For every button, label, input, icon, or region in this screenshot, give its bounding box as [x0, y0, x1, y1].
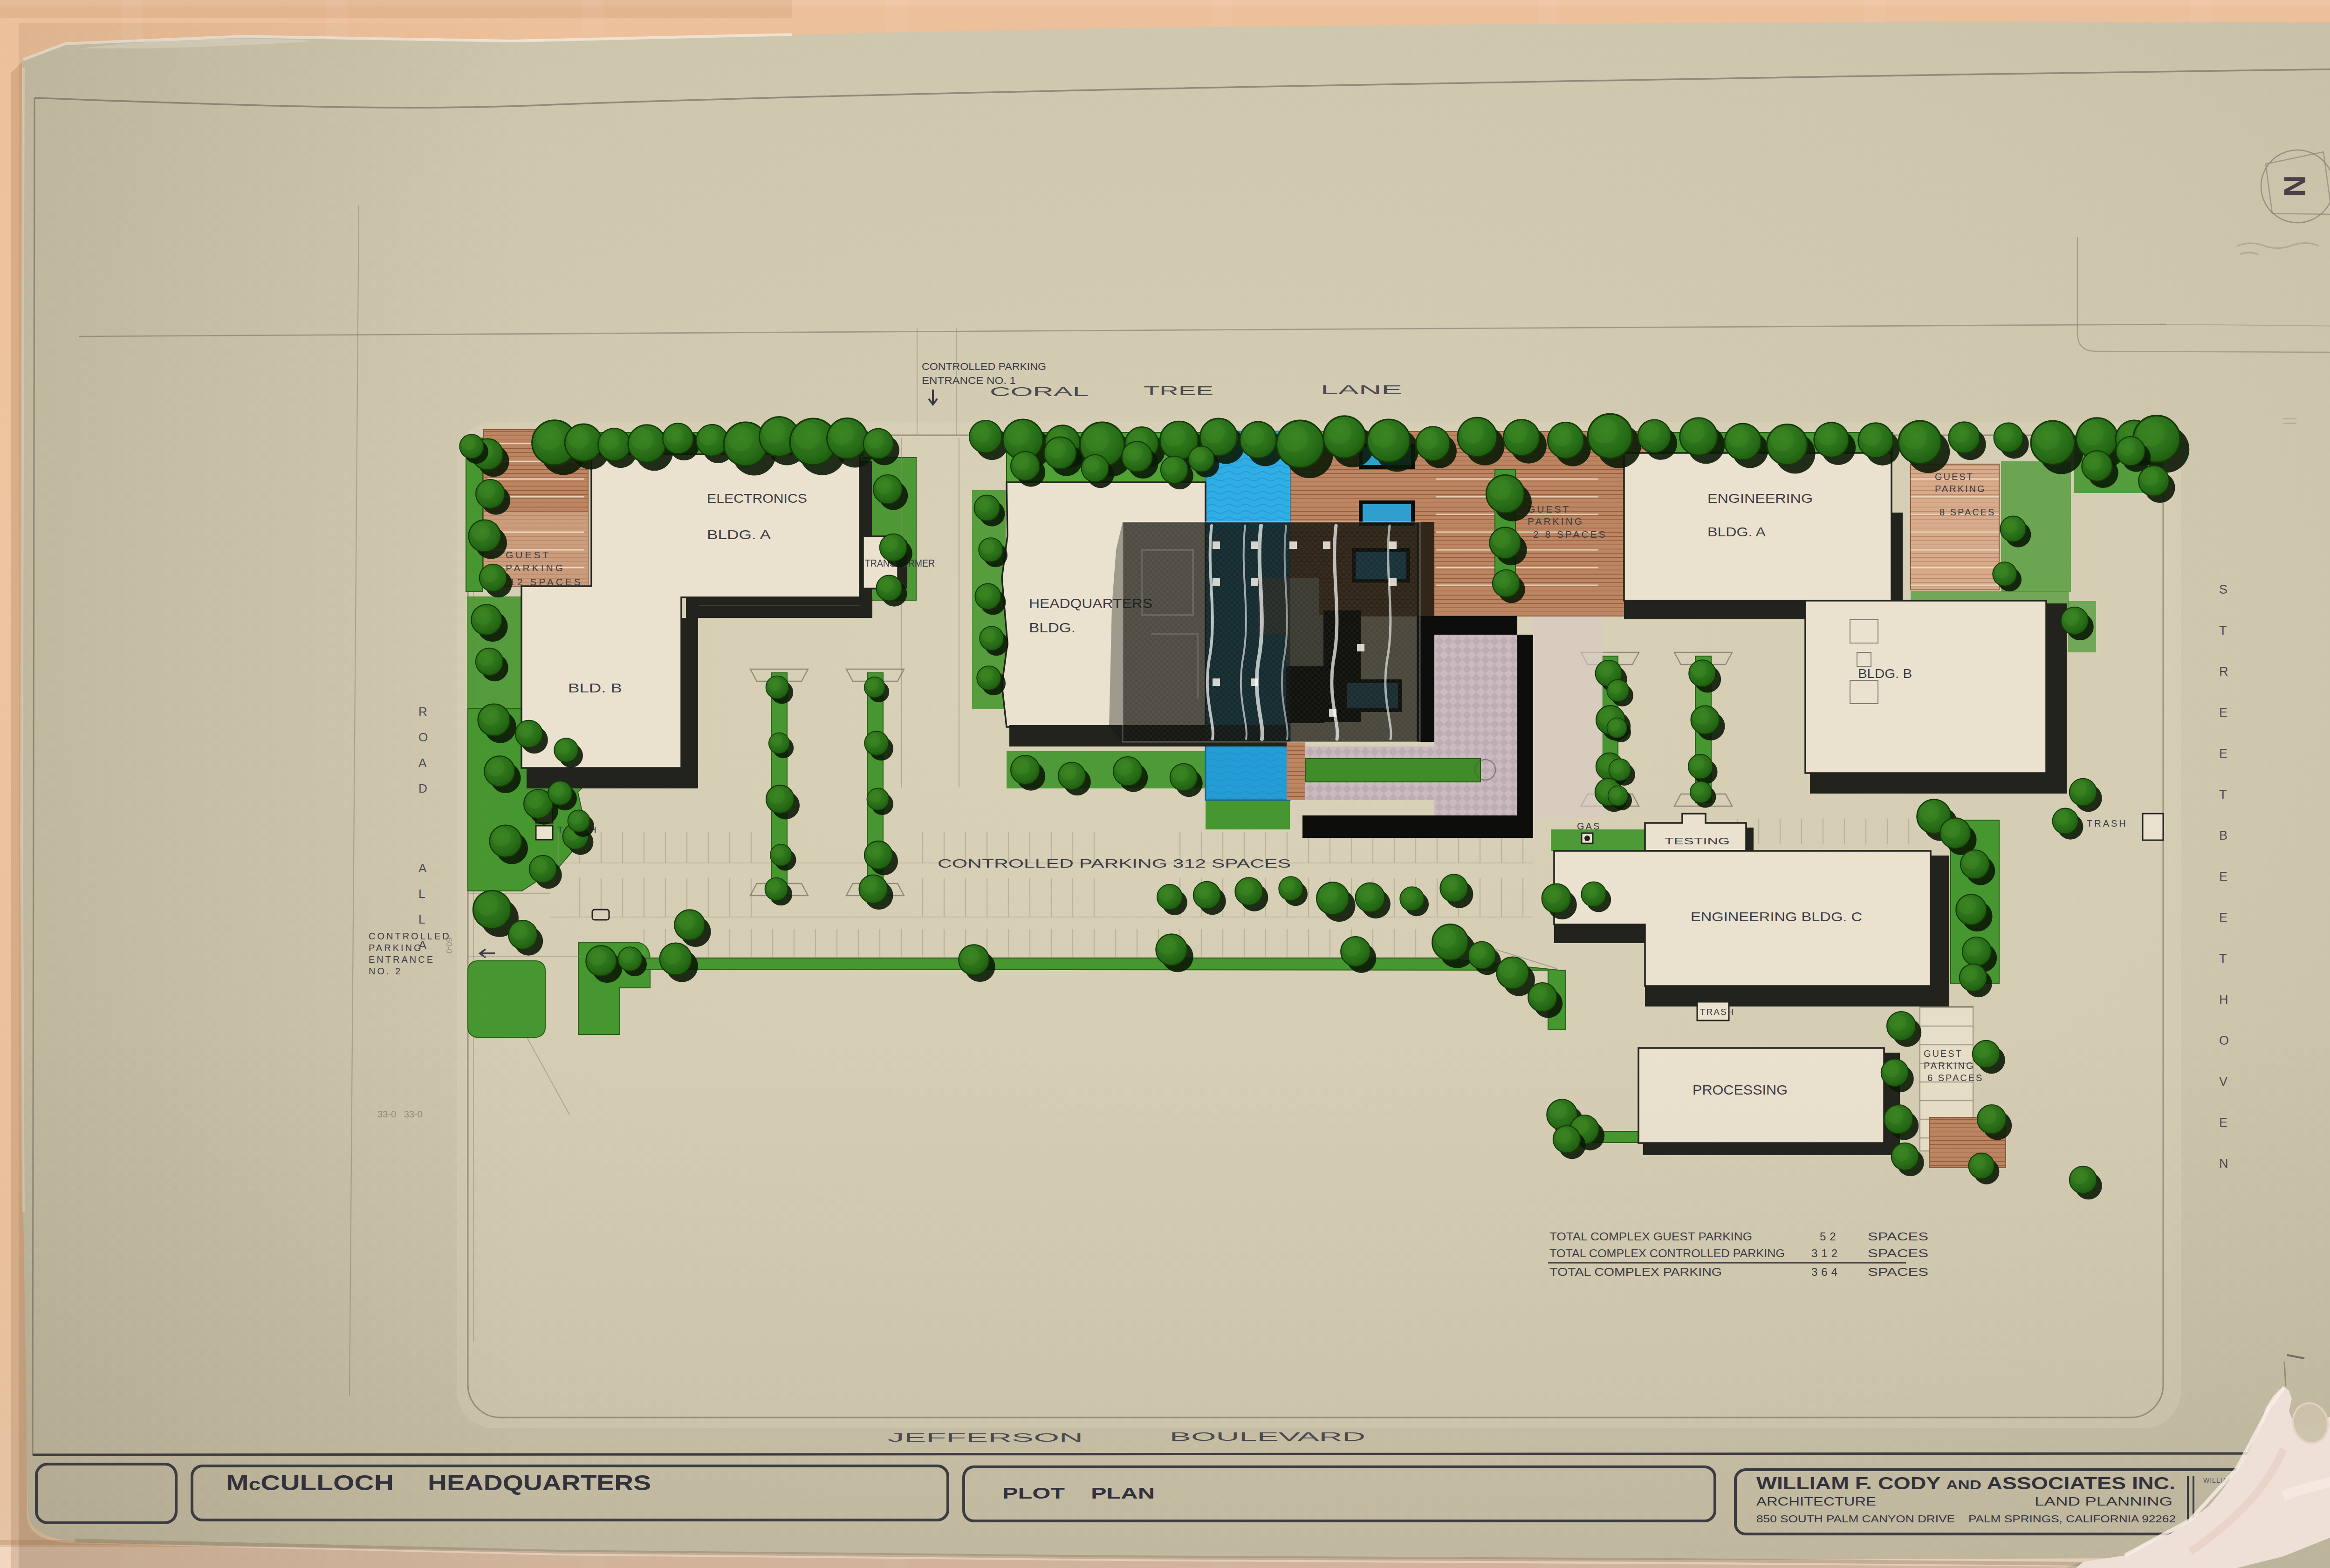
svg-text:ARCHITECTURE: ARCHITECTURE — [1756, 1494, 1876, 1508]
svg-text:TRASH: TRASH — [2087, 818, 2128, 829]
svg-text:TRASH: TRASH — [1700, 1007, 1734, 1017]
svg-text:GAS: GAS — [1577, 821, 1601, 831]
svg-text:LANE: LANE — [1321, 383, 1402, 397]
svg-text:2 8 SPACES: 2 8 SPACES — [1533, 529, 1607, 540]
svg-text:850 SOUTH PALM CANYON DRIVE: 850 SOUTH PALM CANYON DRIVE PALM SPRINGS… — [1756, 1513, 2176, 1525]
svg-text:PARKING: PARKING — [1528, 516, 1584, 527]
svg-text:T: T — [2219, 623, 2227, 637]
svg-text:TESTING: TESTING — [1665, 835, 1730, 846]
svg-text:LAND PLANNING: LAND PLANNING — [2035, 1494, 2172, 1508]
svg-text:HEADQUARTERS: HEADQUARTERS — [428, 1471, 651, 1495]
svg-text:PLAN: PLAN — [1091, 1484, 1155, 1502]
svg-text:BLDG. B: BLDG. B — [1858, 666, 1912, 681]
svg-text:CONTROLLED PARKING 312 S: CONTROLLED PARKING 312 SPACES — [938, 856, 1291, 870]
svg-text:E: E — [2219, 870, 2227, 883]
svg-text:B: B — [2219, 829, 2227, 842]
svg-text:ENGINEERING BLDG. C: ENGINEERING BLDG. C — [1691, 910, 1862, 924]
svg-text:E: E — [2219, 705, 2227, 719]
svg-text:S: S — [2219, 582, 2227, 596]
svg-text:SPACES: SPACES — [1868, 1247, 1928, 1260]
svg-text:PLOT: PLOT — [1002, 1484, 1065, 1502]
svg-text:312: 312 — [1811, 1247, 1841, 1260]
svg-text:8 SPACES: 8 SPACES — [1939, 507, 1995, 517]
svg-text:BLDG. A: BLDG. A — [707, 527, 771, 542]
svg-text:CONTROLLED PARKING: CONTROLLED PARKING — [922, 361, 1046, 372]
svg-text:TOTAL COMPLEX CONTROLLED PA: TOTAL COMPLEX CONTROLLED PARKING — [1549, 1247, 1785, 1260]
svg-text:PARKING: PARKING — [1935, 484, 1986, 494]
svg-text:E: E — [2219, 746, 2227, 760]
svg-text:SPACES: SPACES — [1868, 1230, 1928, 1243]
svg-text:ENGINEERING: ENGINEERING — [1707, 491, 1813, 506]
svg-text:T: T — [2219, 787, 2227, 801]
svg-text:GUEST: GUEST — [1528, 504, 1570, 514]
svg-text:ENTRANCE NO. 1: ENTRANCE NO. 1 — [922, 375, 1016, 386]
svg-text:GUEST: GUEST — [1935, 472, 1974, 482]
svg-text:TREE: TREE — [1144, 384, 1213, 398]
svg-text:CORAL: CORAL — [990, 385, 1089, 399]
svg-text:E: E — [2219, 911, 2227, 924]
svg-text:T: T — [2219, 952, 2227, 965]
svg-text:H: H — [2219, 993, 2228, 1007]
svg-text:52: 52 — [1820, 1230, 1840, 1243]
svg-text:364: 364 — [1811, 1266, 1841, 1278]
svg-text:BLDG. A: BLDG. A — [1707, 525, 1766, 539]
svg-text:SPACES: SPACES — [1868, 1266, 1928, 1278]
svg-text:TOTAL COMPLEX GUEST PARKING: TOTAL COMPLEX GUEST PARKING — [1549, 1230, 1752, 1243]
svg-text:BLD. B: BLD. B — [568, 681, 622, 695]
svg-text:BLDG.: BLDG. — [1029, 620, 1076, 635]
svg-text:TOTAL COMPLEX PARKING: TOTAL COMPLEX PARKING — [1549, 1266, 1722, 1278]
svg-text:N: N — [2278, 175, 2311, 197]
svg-text:ELECTRONICS: ELECTRONICS — [707, 491, 807, 506]
svg-text:R: R — [2219, 664, 2228, 678]
